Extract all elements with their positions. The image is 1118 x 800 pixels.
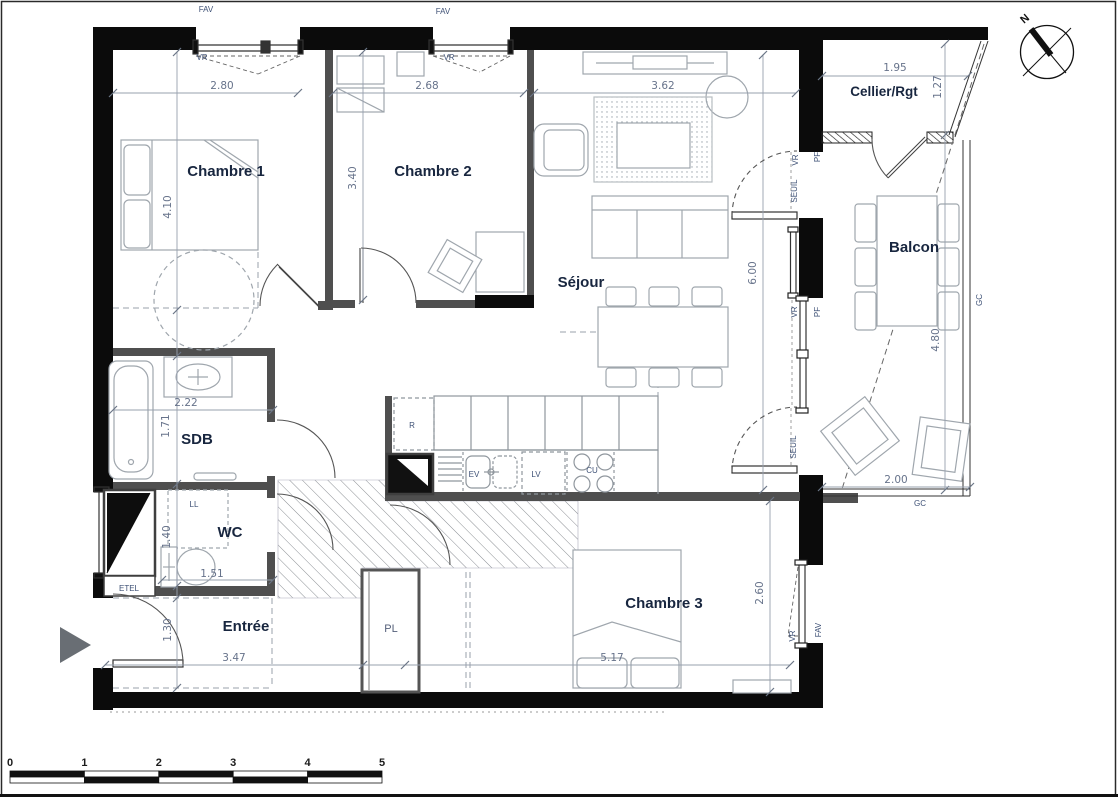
annotation-vr: VR xyxy=(790,306,799,317)
dim-1.27: 1.27 xyxy=(932,75,944,98)
annotation-vr: VR xyxy=(443,53,454,62)
cellier-door-leaf xyxy=(886,137,927,178)
dim-2.68: 2.68 xyxy=(415,80,438,92)
scale-bar: 012345 xyxy=(7,757,385,783)
entry-door-leaf xyxy=(113,660,183,667)
floor-plan-page: Chambre 1Chambre 2SéjourCellier/RgtBalco… xyxy=(0,0,1118,800)
annotation-ll: LL xyxy=(190,500,199,509)
scale-tick-3: 3 xyxy=(230,757,236,769)
room-label-chambre-2: Chambre 2 xyxy=(394,163,472,180)
annotation-r: R xyxy=(409,421,415,430)
annotation-vr: VR xyxy=(791,154,800,165)
annotation-fav: FAV xyxy=(199,5,214,14)
annotation-cu: CU xyxy=(586,466,598,475)
annotation-pf: PF xyxy=(813,307,822,317)
scale-tick-5: 5 xyxy=(379,757,385,769)
bed-chambre3 xyxy=(573,550,681,688)
toilet xyxy=(161,547,215,587)
annotation-seuil: SEUIL xyxy=(790,179,799,203)
compass-north-icon xyxy=(1021,26,1074,79)
scale-tick-2: 2 xyxy=(156,757,162,769)
annotation-gc: GC xyxy=(975,294,984,306)
room-label-entree: Entrée xyxy=(223,618,270,635)
bed-chambre1 xyxy=(121,140,258,250)
floor-plan-drawing: Chambre 1Chambre 2SéjourCellier/RgtBalco… xyxy=(0,0,1118,800)
armchair xyxy=(534,124,588,176)
compass-n-label: N xyxy=(1018,12,1032,26)
annotation-ev: EV xyxy=(469,470,480,479)
tv-console xyxy=(583,52,727,74)
dim-1.51: 1.51 xyxy=(200,568,223,580)
annotation-fav: FAV xyxy=(436,7,451,16)
kitchen-shaft xyxy=(387,454,433,494)
scale-tick-1: 1 xyxy=(81,757,87,769)
dim-6.00: 6.00 xyxy=(747,261,759,284)
dim-3.62: 3.62 xyxy=(651,80,674,92)
sink-vanity xyxy=(164,357,232,397)
dim-2.22: 2.22 xyxy=(174,397,197,409)
annotation-vr: VR xyxy=(196,53,207,62)
balcony-door-leaf xyxy=(732,212,797,219)
annotation-lv: LV xyxy=(531,470,541,479)
room-label-sdb: SDB xyxy=(181,431,213,448)
compass-label: N xyxy=(1018,12,1032,26)
annotation-pl: PL xyxy=(384,623,397,635)
dining-table xyxy=(598,287,728,387)
bathtub xyxy=(109,361,153,479)
dim-1.95: 1.95 xyxy=(883,62,906,74)
annotation-etel: ETEL xyxy=(119,584,140,593)
dim-1.71: 1.71 xyxy=(160,414,172,437)
room-label-balcon: Balcon xyxy=(889,239,939,256)
dim-3.40: 3.40 xyxy=(347,166,359,189)
dim-4.80: 4.80 xyxy=(930,328,942,351)
room-label-sejour: Séjour xyxy=(558,274,605,291)
turning-circle xyxy=(154,250,254,350)
scale-tick-4: 4 xyxy=(305,757,312,769)
annotation-seuil: SEUIL xyxy=(789,435,798,459)
sofa xyxy=(592,196,728,258)
dim-1.30: 1.30 xyxy=(162,618,174,641)
vr-shutter-dashes xyxy=(788,567,798,636)
dim-1.40: 1.40 xyxy=(161,525,173,548)
room-label-chambre-1: Chambre 1 xyxy=(187,163,265,180)
dim-2.80: 2.80 xyxy=(210,80,233,92)
annotation-gc: GC xyxy=(914,499,926,508)
dim-2.60: 2.60 xyxy=(754,581,766,604)
entry-arrow-icon xyxy=(60,627,91,663)
page-frame xyxy=(0,2,1118,796)
room-label-chambre-3: Chambre 3 xyxy=(625,595,703,612)
dim-5.17: 5.17 xyxy=(600,652,623,664)
balcony-table xyxy=(855,196,959,330)
room-label-wc: WC xyxy=(218,524,243,541)
balcony-door2-leaf xyxy=(732,466,797,473)
towel-rail xyxy=(194,473,236,480)
coffee-table xyxy=(617,123,690,168)
etel-shaft xyxy=(104,490,155,596)
chambre1-door-leaf xyxy=(277,264,320,308)
scale-tick-0: 0 xyxy=(7,757,13,769)
dim-4.10: 4.10 xyxy=(162,195,174,218)
annotation-fav: FAV xyxy=(814,622,823,637)
dim-2.00: 2.00 xyxy=(884,474,907,486)
lounge-chairs xyxy=(821,397,970,482)
bench xyxy=(733,680,791,693)
vent-lines xyxy=(438,457,462,481)
dim-3.47: 3.47 xyxy=(222,652,245,664)
dishwasher-lv xyxy=(522,452,565,494)
room-label-cellier: Cellier/Rgt xyxy=(850,84,918,99)
vr-shutter-dashes xyxy=(196,56,300,74)
annotation-pf: PF xyxy=(813,152,822,162)
furniture xyxy=(109,52,970,693)
annotation-vr: VR xyxy=(788,630,797,641)
